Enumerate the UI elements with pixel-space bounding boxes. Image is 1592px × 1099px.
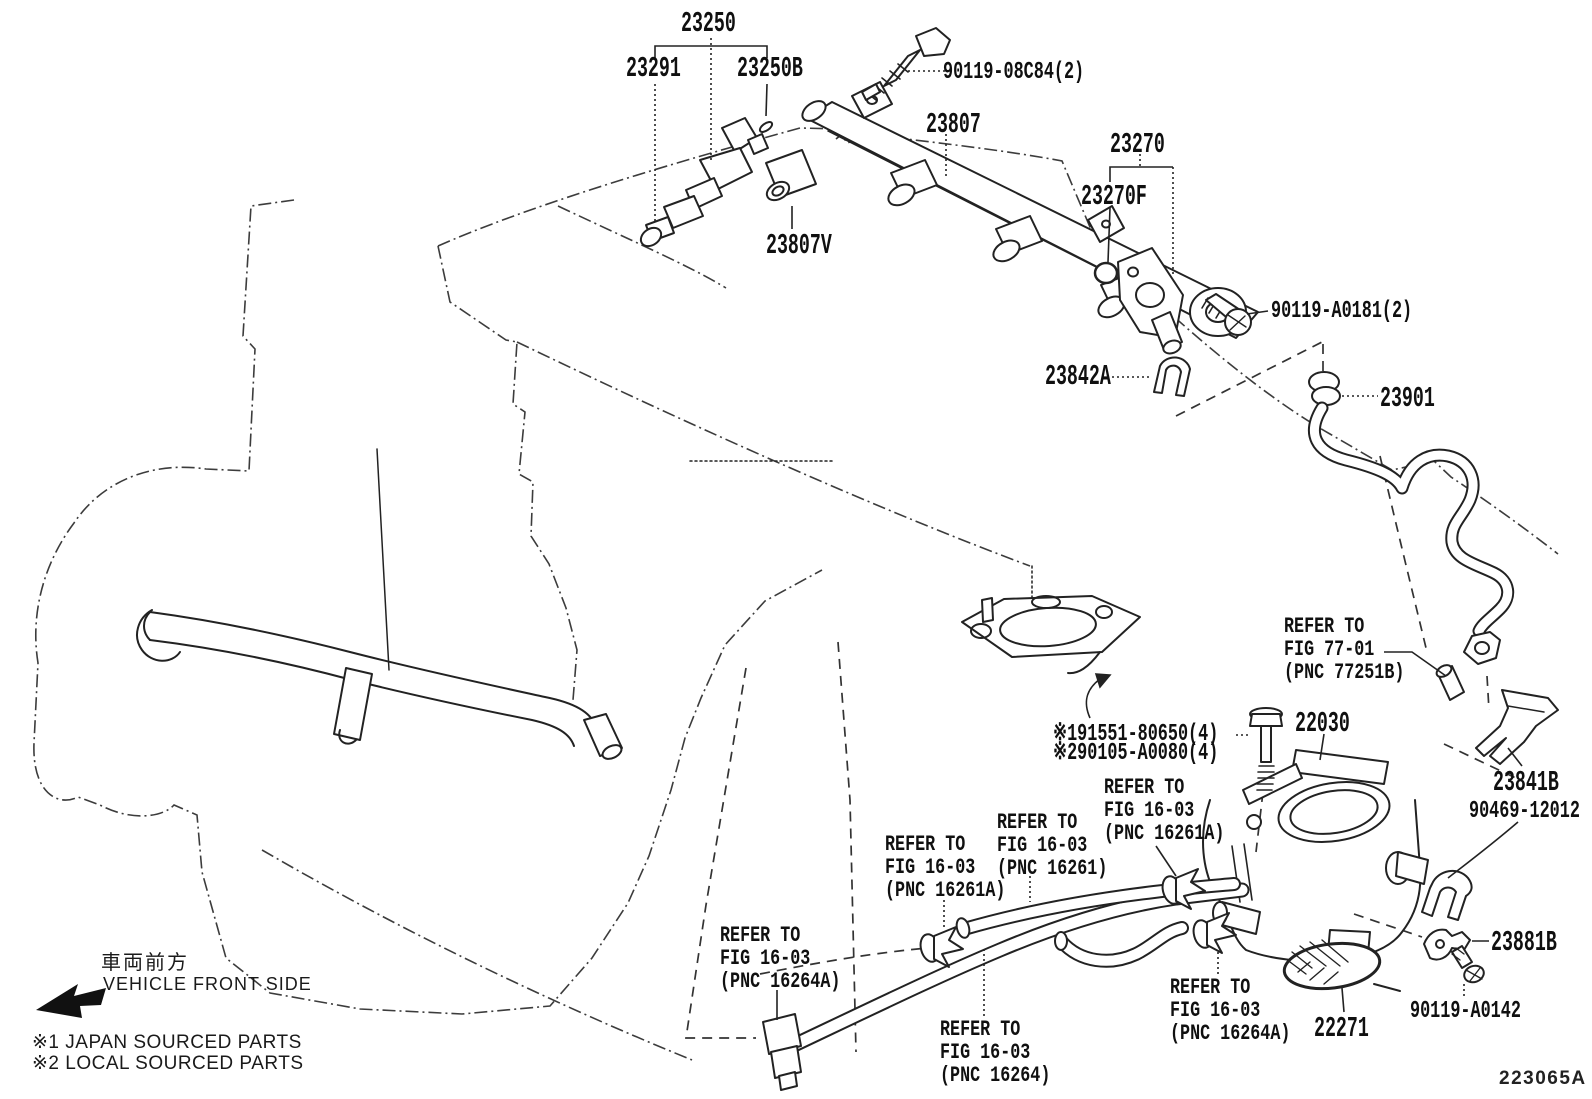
refer-line: FIG 16-03 <box>997 834 1107 857</box>
refer-note-fig77-01: REFER TOFIG 77-01(PNC 77251B) <box>1284 615 1404 684</box>
part-label-90119-a0181[interactable]: 90119-A0181(2) <box>1271 300 1412 324</box>
refer-line: (PNC 16264A) <box>1170 1022 1290 1045</box>
note-japan-sourced-parts: ※1 JAPAN SOURCED PARTS <box>32 1031 302 1054</box>
refer-note-16264a-left: REFER TOFIG 16-03(PNC 16264A) <box>720 924 840 993</box>
refer-line: REFER TO <box>885 833 1005 856</box>
refer-line: (PNC 16264A) <box>720 970 840 993</box>
refer-line: (PNC 16261) <box>997 857 1107 880</box>
refer-note-16264a-right: REFER TOFIG 16-03(PNC 16264A) <box>1170 976 1290 1045</box>
refer-line: FIG 16-03 <box>1170 999 1290 1022</box>
vehicle-front-label-jp: 車両前方 <box>101 946 189 975</box>
refer-line: (PNC 16261A) <box>885 879 1005 902</box>
part-label-23291[interactable]: 23291 <box>626 54 681 83</box>
part-label-90105-a0080[interactable]: ※290105-A0080(4) <box>1053 742 1218 766</box>
parts-diagram: 23250 23291 23250B 90119-08C84(2) 23807 … <box>0 0 1592 1099</box>
refer-note-16261a-right: REFER TOFIG 16-03(PNC 16261A) <box>1104 776 1224 845</box>
part-label-23841b[interactable]: 23841B <box>1493 768 1559 797</box>
part-label-90469-12012[interactable]: 90469-12012 <box>1469 800 1580 824</box>
refer-line: REFER TO <box>1104 776 1224 799</box>
part-label-23250[interactable]: 23250 <box>681 9 736 38</box>
refer-line: FIG 77-01 <box>1284 638 1404 661</box>
refer-line: (PNC 16261A) <box>1104 822 1224 845</box>
refer-line: FIG 16-03 <box>940 1041 1050 1064</box>
refer-line: REFER TO <box>997 811 1107 834</box>
vehicle-front-label-en: VEHICLE FRONT SIDE <box>103 974 312 995</box>
part-label-22030[interactable]: 22030 <box>1295 709 1350 738</box>
part-label-23270[interactable]: 23270 <box>1110 130 1165 159</box>
refer-line: REFER TO <box>1170 976 1290 999</box>
part-label-90119-08c84[interactable]: 90119-08C84(2) <box>943 61 1084 85</box>
refer-line: FIG 16-03 <box>885 856 1005 879</box>
part-label-23901[interactable]: 23901 <box>1380 384 1435 413</box>
part-label-23881b[interactable]: 23881B <box>1491 928 1557 957</box>
figure-code: 223065A <box>1499 1068 1587 1090</box>
refer-line: FIG 16-03 <box>720 947 840 970</box>
part-label-23842a[interactable]: 23842A <box>1045 362 1111 391</box>
refer-note-16261a-left: REFER TOFIG 16-03(PNC 16261A) <box>885 833 1005 902</box>
refer-line: REFER TO <box>720 924 840 947</box>
part-label-90119-a0142[interactable]: 90119-A0142 <box>1410 1000 1521 1024</box>
note-local-sourced-parts: ※2 LOCAL SOURCED PARTS <box>32 1052 304 1075</box>
refer-note-16264: REFER TOFIG 16-03(PNC 16264) <box>940 1018 1050 1087</box>
part-label-23807v[interactable]: 23807V <box>766 231 832 260</box>
part-label-23270f[interactable]: 23270F <box>1081 182 1147 211</box>
refer-note-16261: REFER TOFIG 16-03(PNC 16261) <box>997 811 1107 880</box>
part-label-23250b[interactable]: 23250B <box>737 54 803 83</box>
refer-line: FIG 16-03 <box>1104 799 1224 822</box>
part-label-23807[interactable]: 23807 <box>926 110 981 139</box>
refer-line: REFER TO <box>1284 615 1404 638</box>
refer-line: REFER TO <box>940 1018 1050 1041</box>
refer-line: (PNC 16264) <box>940 1064 1050 1087</box>
refer-line: (PNC 77251B) <box>1284 661 1404 684</box>
part-label-22271[interactable]: 22271 <box>1314 1014 1369 1043</box>
